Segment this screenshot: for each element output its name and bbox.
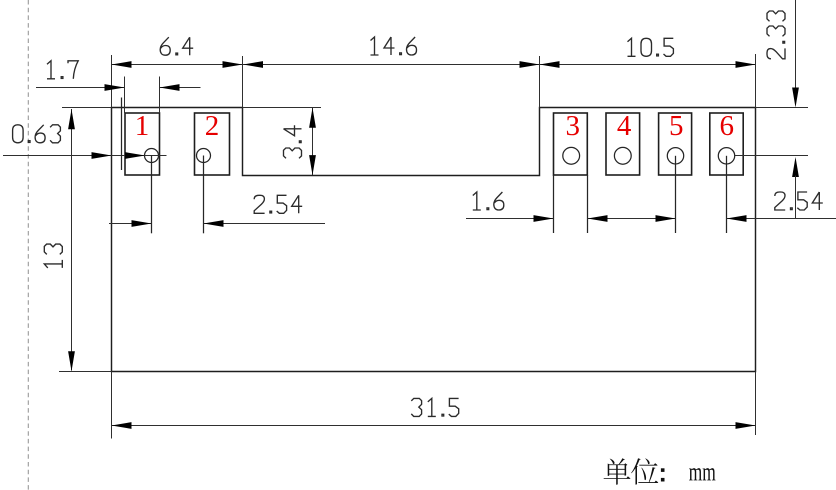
svg-text:2: 2 bbox=[205, 110, 220, 142]
svg-text:6: 6 bbox=[719, 110, 734, 142]
svg-text:5: 5 bbox=[669, 110, 684, 142]
svg-text:3: 3 bbox=[566, 110, 581, 142]
svg-text:1: 1 bbox=[135, 110, 150, 142]
svg-text:4: 4 bbox=[617, 110, 632, 142]
